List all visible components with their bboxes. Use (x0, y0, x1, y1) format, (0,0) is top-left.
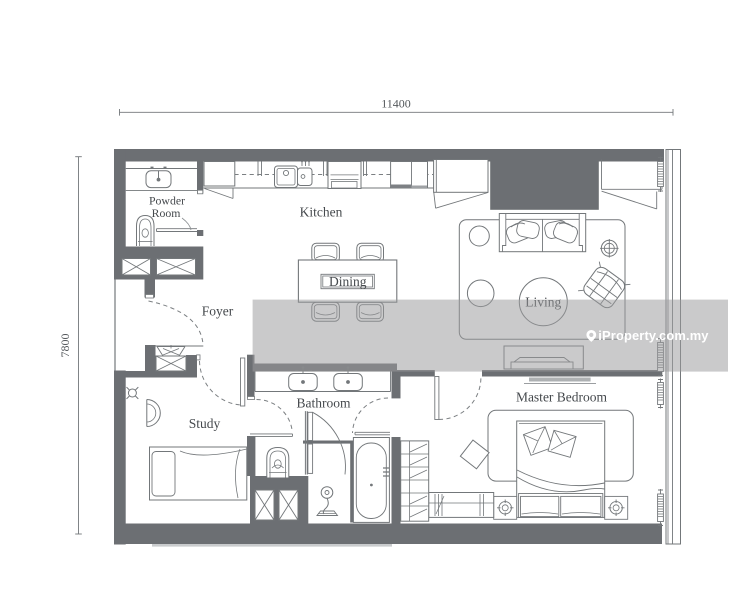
svg-text:11400: 11400 (381, 97, 411, 111)
svg-text:Foyer: Foyer (202, 304, 234, 319)
svg-text:Master Bedroom: Master Bedroom (516, 390, 608, 405)
svg-text:Bathroom: Bathroom (297, 396, 351, 411)
svg-text:7800: 7800 (58, 334, 72, 358)
svg-text:iProperty.com.my: iProperty.com.my (598, 328, 709, 343)
svg-text:Study: Study (189, 416, 221, 431)
svg-text:Room: Room (152, 206, 181, 220)
svg-text:Kitchen: Kitchen (300, 205, 343, 220)
svg-text:Dining: Dining (329, 274, 367, 289)
